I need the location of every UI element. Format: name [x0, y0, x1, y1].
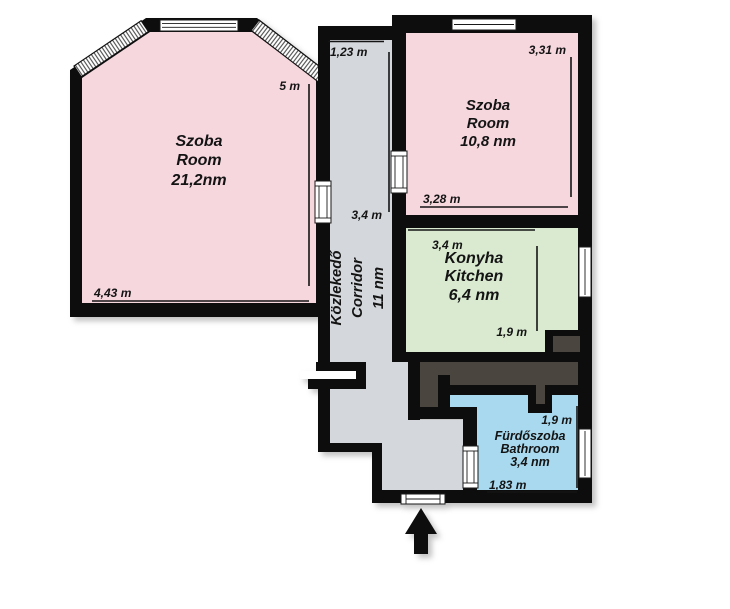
dim-bedroom-height: 3,31 m: [529, 43, 567, 57]
dim-kitchen-depth: 1,9 m: [496, 325, 527, 339]
living-room-door-icon: [315, 181, 331, 223]
bay-window-center-icon: [160, 20, 238, 31]
kitchen-window-icon: [579, 247, 591, 297]
living-name-en: Room: [176, 152, 221, 169]
bedroom-label: Szoba Room 10,8 nm: [460, 97, 516, 150]
bathroom-name-hu: Fürdőszoba: [495, 429, 566, 443]
dim-corridor-entry-width: 1,23 m: [330, 45, 368, 59]
bathroom-area: 3,4 nm: [510, 455, 550, 469]
bedroom-name-hu: Szoba: [466, 97, 510, 114]
dim-corridor-length: 3,4 m: [351, 208, 382, 222]
kitchen-counter: [545, 330, 580, 352]
floorplan-page: 5 m 4,43 m 1,23 m 3,4 m 3,31 m 3,28 m 3,…: [0, 0, 730, 609]
bedroom-window-icon: [452, 19, 516, 30]
bedroom-name-en: Room: [467, 115, 510, 132]
living-room-label: Szoba Room 21,2nm: [170, 133, 226, 189]
floorplan-svg: 5 m 4,43 m 1,23 m 3,4 m 3,31 m 3,28 m 3,…: [0, 0, 730, 609]
bedroom-area: 10,8 nm: [460, 133, 516, 150]
corridor-name-en: Corridor: [349, 257, 366, 318]
corridor-name-hu: Közlekedő: [328, 250, 345, 326]
living-area: 21,2nm: [170, 172, 226, 189]
bedroom-door-icon: [391, 151, 407, 193]
dim-bedroom-width: 3,28 m: [423, 192, 461, 206]
floorplan: 5 m 4,43 m 1,23 m 3,4 m 3,31 m 3,28 m 3,…: [70, 15, 592, 554]
living-name-hu: Szoba: [175, 133, 222, 150]
bathroom-door-icon: [463, 446, 478, 488]
dim-bathroom-depth: 1,9 m: [541, 413, 572, 427]
dim-living-height: 5 m: [279, 79, 300, 93]
service-stub-core: [536, 378, 545, 404]
corridor-area: 11 nm: [370, 267, 387, 309]
entrance-door-icon: [401, 494, 445, 504]
dim-living-width: 4,43 m: [93, 286, 132, 300]
kitchen-area: 6,4 nm: [449, 287, 500, 304]
kitchen-name-hu: Konyha: [445, 250, 504, 267]
service-mass-arm: [420, 362, 438, 408]
kitchen-label: Konyha Kitchen 6,4 nm: [445, 250, 504, 304]
bathroom-window-icon: [579, 429, 591, 478]
entrance-arrow-icon: [405, 508, 437, 554]
dim-bathroom-width: 1,83 m: [489, 478, 527, 492]
bathroom-name-en: Bathroom: [500, 442, 559, 456]
kitchen-name-en: Kitchen: [445, 268, 504, 285]
